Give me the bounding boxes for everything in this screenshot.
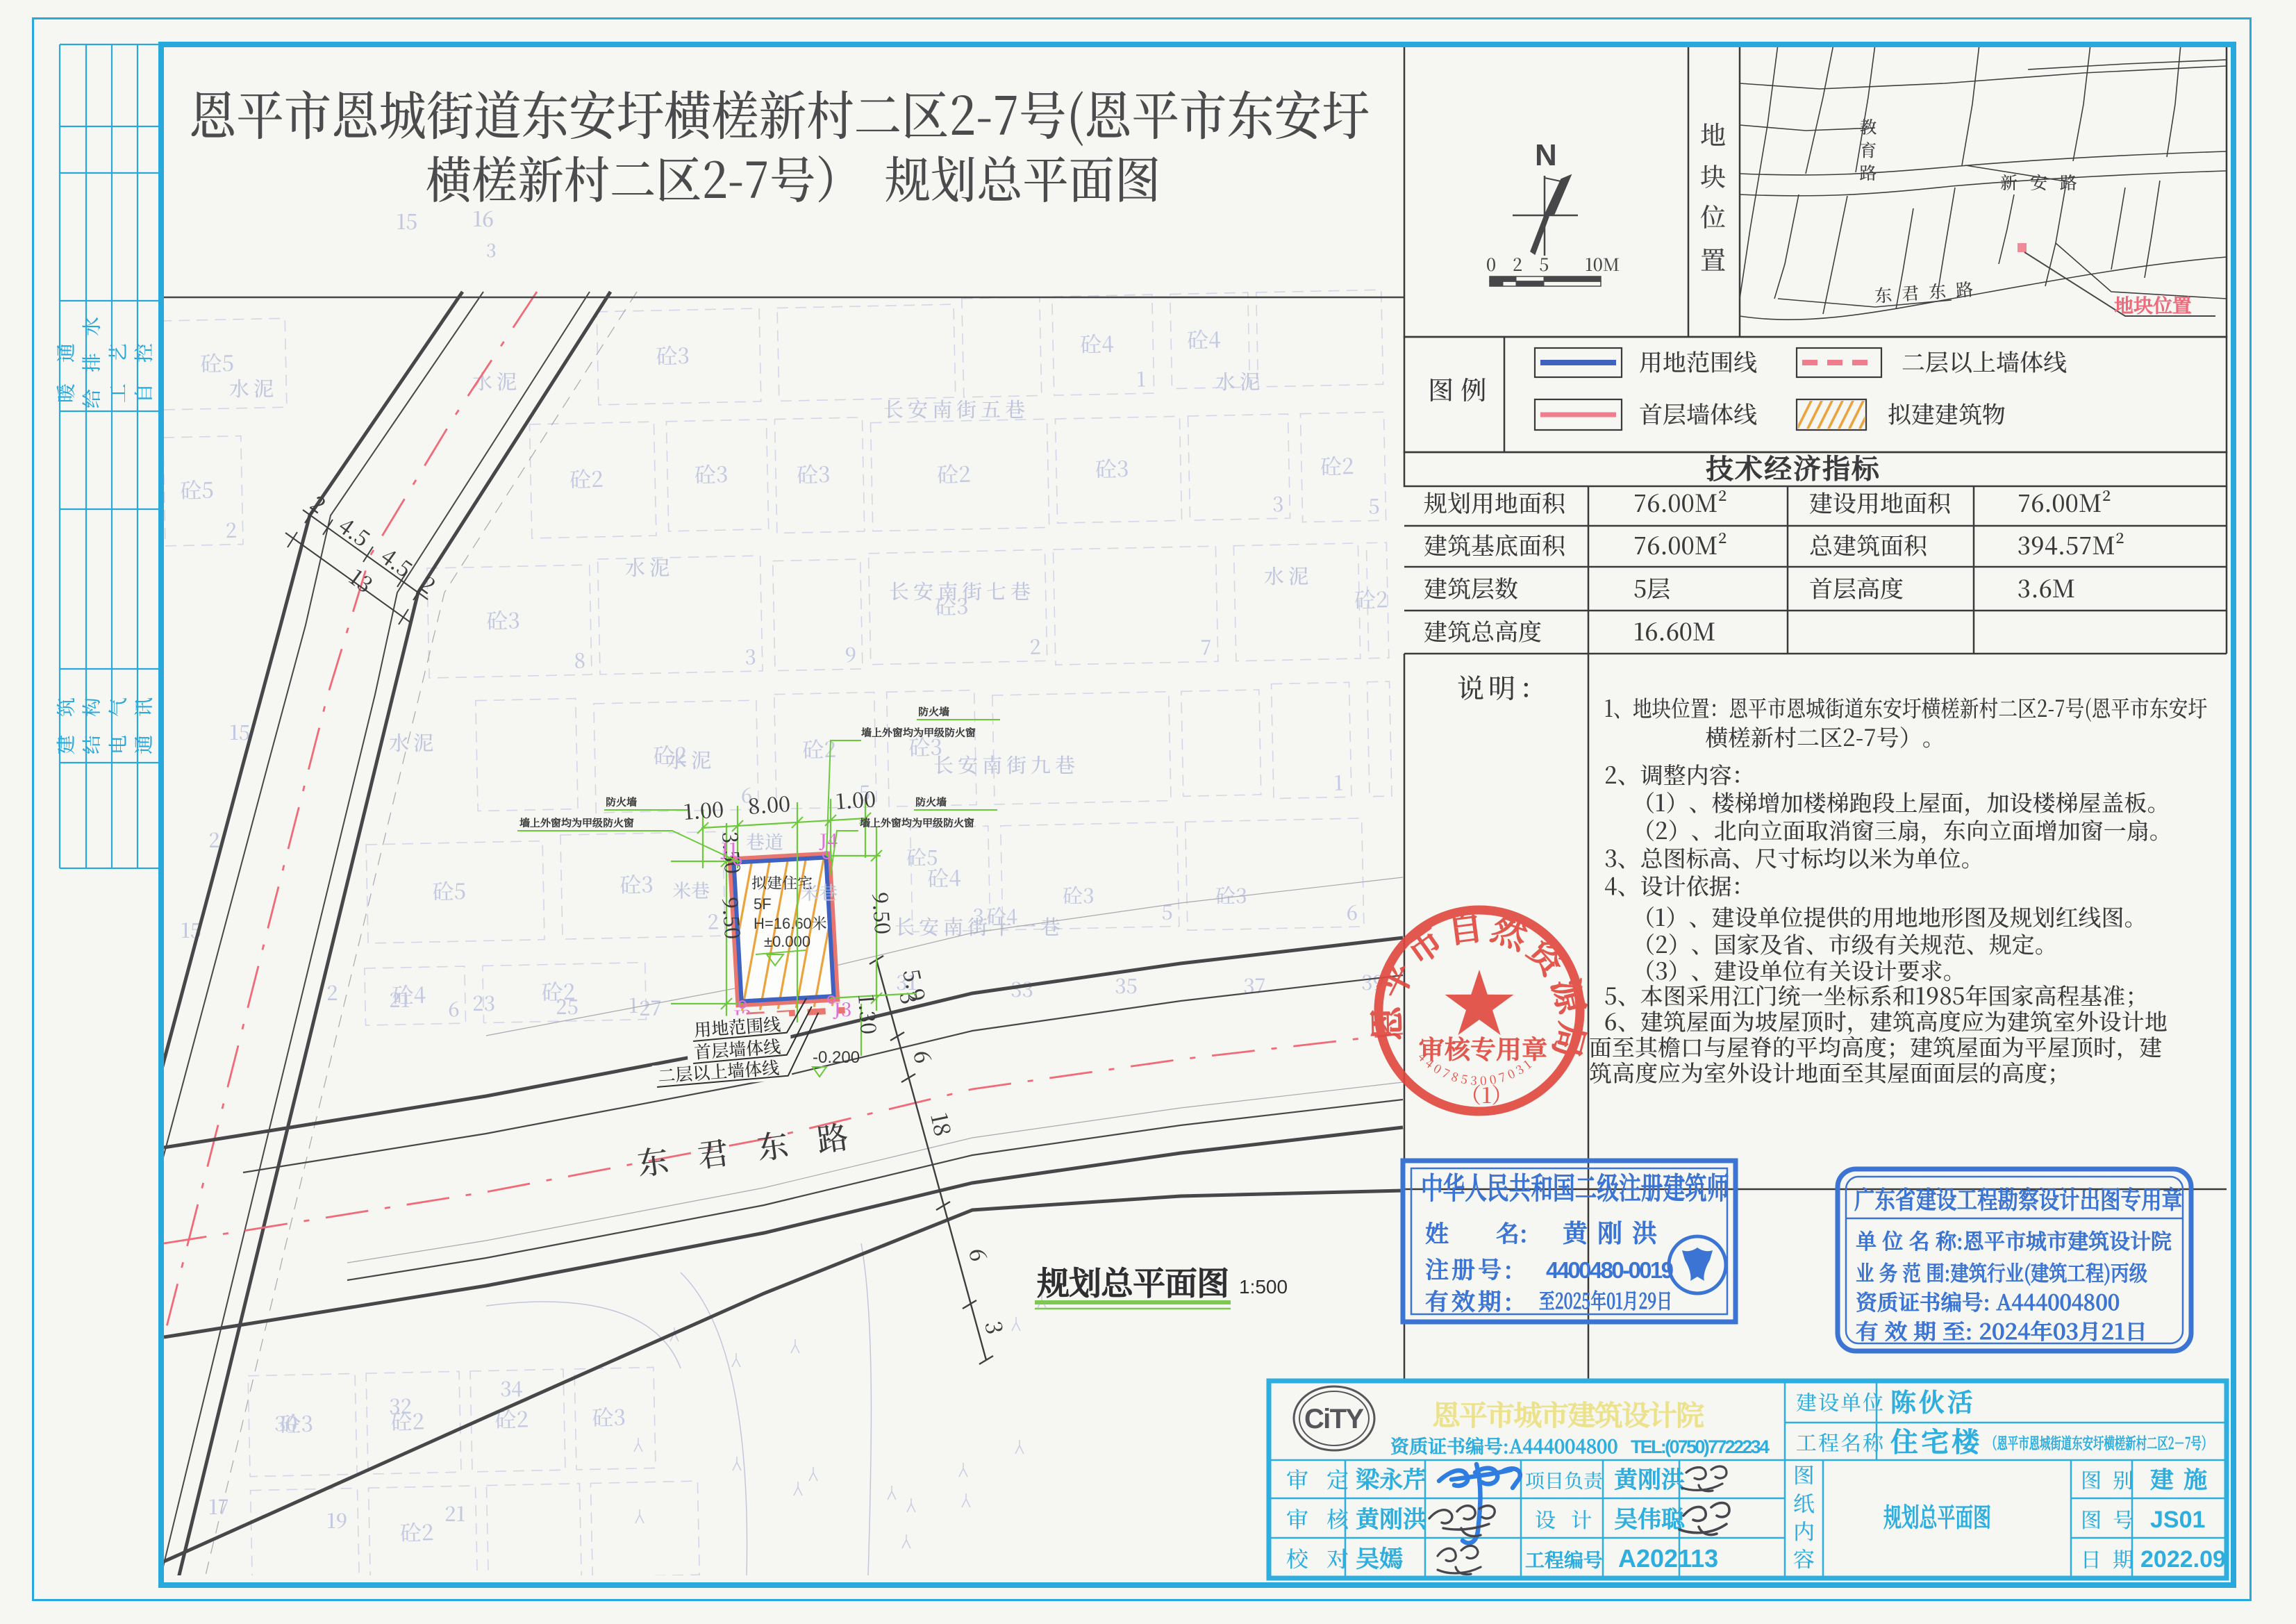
svg-text:排: 排 bbox=[77, 353, 105, 372]
svg-text:水: 水 bbox=[77, 317, 105, 336]
svg-text:构: 构 bbox=[77, 697, 105, 717]
svg-text:电: 电 bbox=[103, 735, 131, 754]
svg-text:建: 建 bbox=[51, 735, 79, 754]
svg-text:暖: 暖 bbox=[51, 383, 79, 403]
svg-text:讯: 讯 bbox=[129, 697, 157, 717]
svg-text:气: 气 bbox=[103, 697, 131, 717]
svg-text:通: 通 bbox=[51, 343, 79, 363]
svg-text:给: 给 bbox=[77, 389, 105, 408]
svg-text:筑: 筑 bbox=[51, 697, 79, 717]
svg-text:艺: 艺 bbox=[103, 343, 131, 363]
svg-text:工: 工 bbox=[103, 383, 131, 403]
svg-text:通: 通 bbox=[129, 735, 157, 754]
svg-text:控: 控 bbox=[129, 343, 157, 363]
svg-text:自: 自 bbox=[129, 383, 157, 403]
svg-text:结: 结 bbox=[77, 735, 105, 754]
